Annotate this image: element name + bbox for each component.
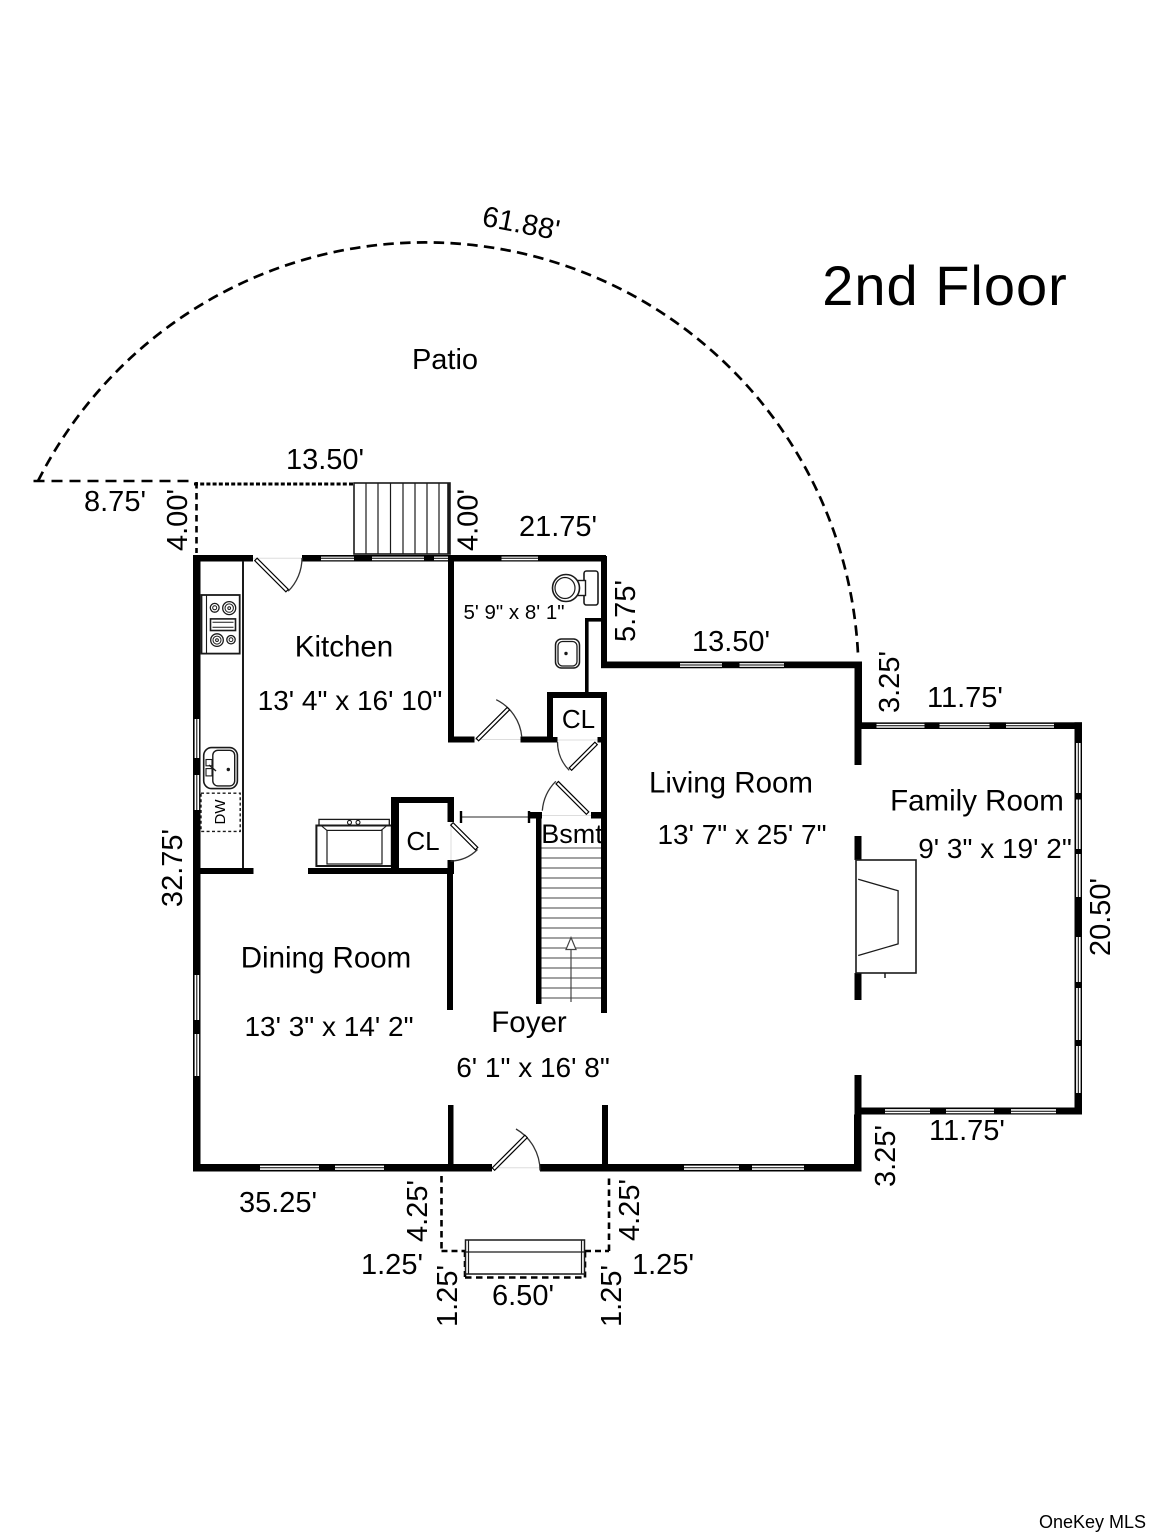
svg-text:1.25': 1.25' (361, 1249, 423, 1281)
svg-text:11.75': 11.75' (929, 1115, 1005, 1147)
svg-text:CL: CL (406, 826, 439, 856)
svg-text:Dining Room: Dining Room (241, 942, 412, 975)
svg-text:13' 3" x 14' 2": 13' 3" x 14' 2" (244, 1011, 413, 1042)
svg-text:DW: DW (212, 799, 229, 825)
svg-text:Bsmt: Bsmt (541, 819, 603, 849)
svg-text:Kitchen: Kitchen (295, 631, 393, 664)
svg-text:13.50': 13.50' (692, 626, 770, 658)
svg-text:6.50': 6.50' (492, 1280, 554, 1312)
svg-text:CL: CL (562, 704, 595, 734)
svg-text:4.00': 4.00' (453, 489, 485, 551)
svg-text:Foyer: Foyer (491, 1006, 567, 1039)
svg-text:5' 9" x 8' 1": 5' 9" x 8' 1" (463, 601, 564, 624)
svg-text:4.25': 4.25' (614, 1179, 646, 1241)
svg-text:13.50': 13.50' (286, 444, 364, 476)
svg-text:20.50': 20.50' (1085, 878, 1117, 956)
svg-text:Family Room: Family Room (890, 785, 1064, 818)
svg-text:4.25': 4.25' (402, 1180, 434, 1242)
svg-text:OneKey MLS: OneKey MLS (1039, 1512, 1146, 1532)
svg-text:1.25': 1.25' (632, 1249, 694, 1281)
svg-text:21.75': 21.75' (519, 511, 597, 543)
svg-text:6' 1" x 16' 8": 6' 1" x 16' 8" (456, 1052, 610, 1083)
svg-text:Living Room: Living Room (649, 767, 813, 800)
svg-text:9' 3" x 19' 2": 9' 3" x 19' 2" (918, 833, 1072, 864)
svg-text:3.25': 3.25' (870, 1125, 902, 1187)
svg-text:13' 7" x 25' 7": 13' 7" x 25' 7" (657, 819, 826, 850)
svg-text:8.75': 8.75' (84, 486, 146, 518)
svg-text:2nd Floor: 2nd Floor (822, 254, 1068, 317)
svg-text:1.25': 1.25' (432, 1265, 464, 1327)
svg-text:32.75': 32.75' (157, 829, 189, 907)
svg-text:11.75': 11.75' (927, 682, 1003, 714)
svg-text:3.25': 3.25' (874, 651, 906, 713)
svg-text:Patio: Patio (412, 344, 478, 376)
svg-text:13' 4" x 16' 10": 13' 4" x 16' 10" (258, 685, 443, 716)
svg-text:1.25': 1.25' (596, 1265, 628, 1327)
svg-text:5.75': 5.75' (610, 580, 642, 642)
svg-text:35.25': 35.25' (239, 1187, 317, 1219)
svg-text:4.00': 4.00' (162, 489, 194, 551)
